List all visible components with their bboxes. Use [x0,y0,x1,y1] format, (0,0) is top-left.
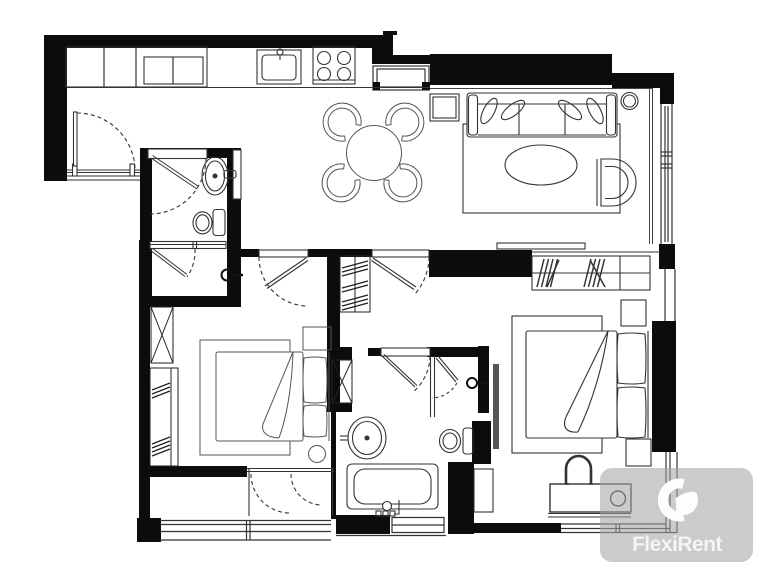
svg-text:FlexiRent: FlexiRent [632,533,723,556]
